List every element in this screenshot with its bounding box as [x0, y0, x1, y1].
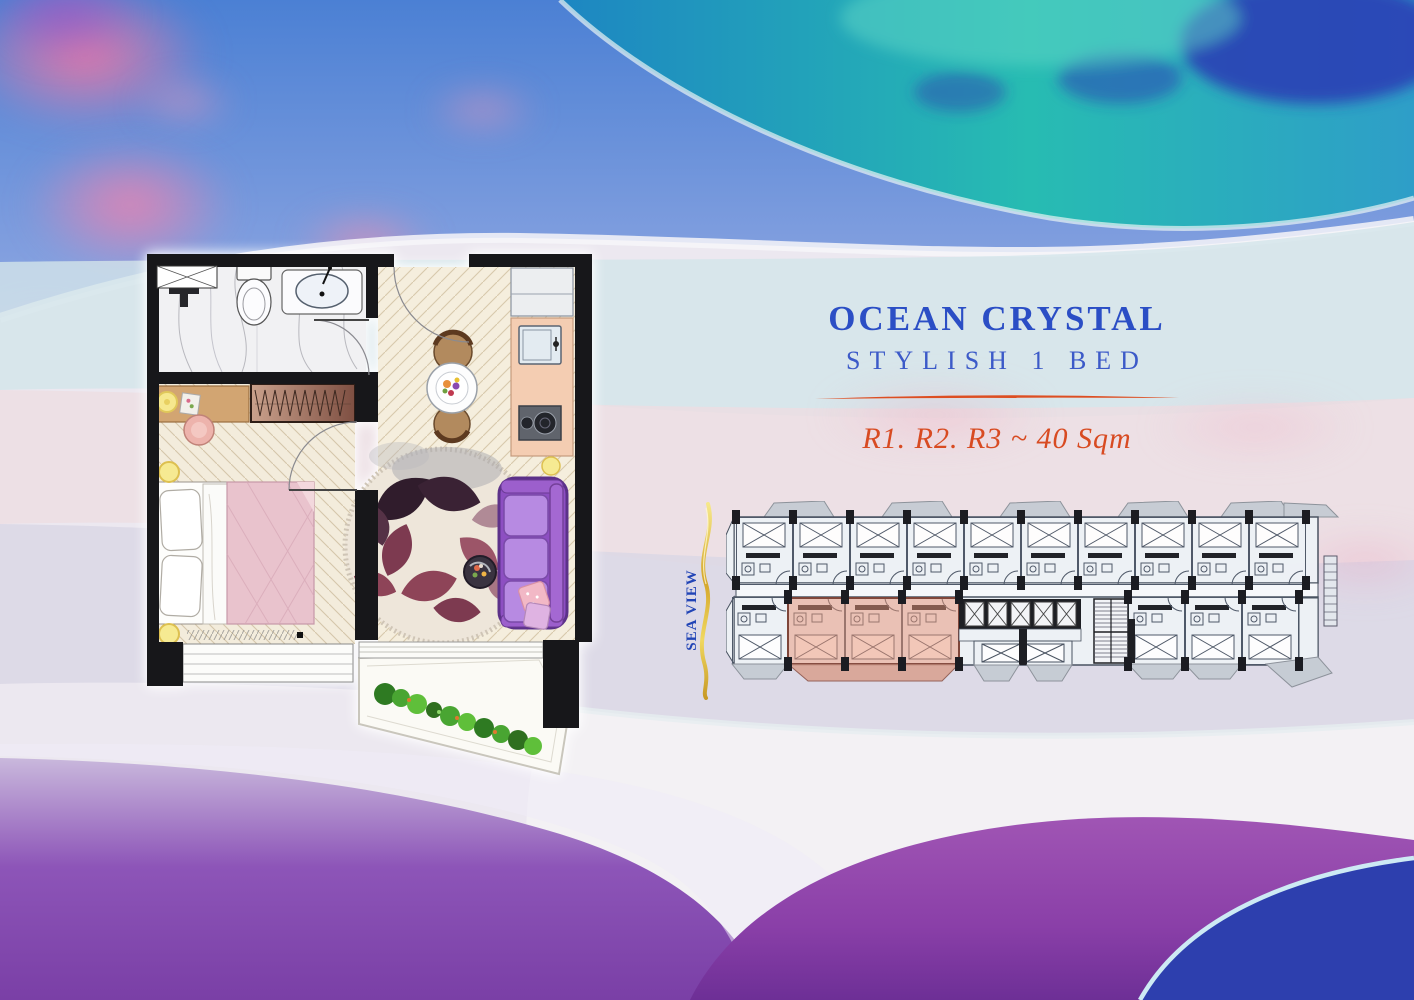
corner-unit [1299, 598, 1318, 664]
living-window-sill [359, 642, 543, 658]
corridor [736, 583, 1318, 597]
bedside-lamp [159, 624, 179, 644]
highlighted-balcony-skirt [788, 664, 959, 681]
dining-table [427, 363, 477, 413]
sofa-cushion [504, 538, 548, 579]
pillow [159, 555, 202, 617]
wardrobe [251, 384, 355, 422]
sofa-cushion [504, 495, 548, 536]
page-title: OCEAN CRYSTAL [755, 299, 1239, 339]
units-area-text: R1. R2. R3 ~ 40 Sqm [755, 422, 1239, 456]
dark-sea-patch [914, 72, 1006, 112]
building-floor-plan [726, 501, 1346, 699]
throw-pillow [523, 602, 551, 630]
book [180, 393, 201, 415]
toilet [237, 262, 271, 325]
page-subtitle: STYLISH 1 BED [755, 346, 1239, 376]
apartment-floor-plan [147, 254, 592, 782]
pillow [159, 489, 202, 551]
left-end-top [726, 517, 734, 583]
wall-lamp [542, 457, 560, 475]
bed [157, 482, 314, 624]
fridge [511, 268, 573, 316]
dining-set [427, 332, 477, 442]
sea-view-marker: SEA VIEW [680, 500, 726, 700]
side-rail [1324, 556, 1337, 626]
balcony-skirt [974, 665, 1019, 681]
highlighted-units [788, 598, 959, 681]
stove [519, 406, 561, 440]
bedside-lamp [159, 462, 179, 482]
brochure-page: OCEAN CRYSTAL STYLISH 1 BED R1. R2. R3 ~… [0, 0, 1414, 1000]
balcony-skirt [1027, 665, 1072, 681]
sea-view-label: SEA VIEW [684, 560, 704, 660]
sofa [499, 478, 567, 630]
balcony [359, 652, 571, 774]
kitchen-sink [519, 326, 561, 364]
bed-blanket [227, 482, 314, 624]
title-block: OCEAN CRYSTAL STYLISH 1 BED R1. R2. R3 ~… [755, 299, 1239, 456]
bathroom-sink [282, 266, 362, 314]
kitchen [511, 268, 573, 456]
teal-wave-band [560, 0, 1414, 228]
elevator-core [959, 599, 1081, 681]
wall-shaft [157, 266, 217, 288]
divider-line [812, 391, 1182, 403]
bed-runner [203, 484, 229, 624]
desk-chair [184, 415, 214, 445]
coffee-table [464, 556, 496, 588]
